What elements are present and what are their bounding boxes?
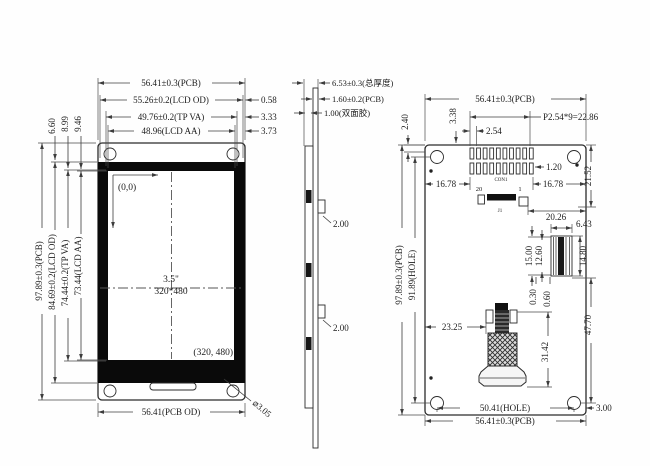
dim-top-gap-tp: 8.99 — [60, 116, 70, 132]
stem-flare — [479, 366, 526, 386]
j1-label: J1 — [498, 209, 503, 214]
pin-1-label: 1 — [518, 186, 521, 193]
dim-conn-gap1: 0.30 — [528, 289, 538, 305]
front-left-dimensions: 97.89±0.3(PCB) 84.69±0.2(LCD OD) 74.44±0… — [34, 116, 83, 400]
dim-conn-height: 14.80 — [578, 245, 588, 266]
stem-side-tab — [486, 310, 493, 323]
technical-drawing: (0,0) 3.5" 320*480 (320, 480) 56.41±0.3(… — [0, 0, 650, 466]
dim-tape-thickness: 1.00(双面胶) — [324, 108, 370, 118]
back-view: CON1 20 1 J1 — [394, 94, 612, 426]
dim-pin-pitch-total: P2.54*9=22.86 — [543, 112, 599, 122]
lcd-module-drawing: (0,0) 3.5" 320*480 (320, 480) 56.41±0.3(… — [0, 0, 650, 466]
dim-edge-gap-top: 3.38 — [448, 108, 458, 124]
fiducial-dot — [429, 169, 432, 172]
dim-lcd-aa-height: 73.44(LCD AA) — [73, 237, 83, 296]
corner-coordinate-label: (320, 480) — [193, 347, 233, 358]
side-tab-lower — [318, 305, 325, 318]
mounting-hole — [104, 385, 116, 397]
dim-edge-margin: 3.00 — [596, 403, 612, 413]
dim-pad-margin-right: 16.78 — [543, 179, 564, 189]
mounting-hole — [431, 397, 444, 410]
dim-offset-tp: 3.33 — [261, 112, 277, 122]
fpc-footprint-bar — [487, 194, 516, 201]
screen-size-label: 3.5" — [163, 275, 179, 285]
dim-pcb-od-width: 56.41(PCB OD) — [142, 407, 201, 417]
dim-tab-upper: 2.00 — [333, 219, 349, 229]
dim-hole-width: 50.41(HOLE) — [480, 403, 530, 413]
dim-conn-len1: 15.00 — [524, 245, 534, 266]
dim-offset-od: 0.58 — [261, 95, 277, 105]
pin-20-label: 20 — [476, 186, 483, 193]
screen-resolution-label: 320*480 — [154, 287, 188, 297]
dim-tab-lower: 2.00 — [333, 323, 349, 333]
dim-pad-width: 1.20 — [546, 162, 562, 172]
front-top-dimensions: 56.41±0.3(PCB) 55.26±0.2(LCD OD) 0.58 49… — [98, 78, 277, 136]
dim-tp-va-height: 74.44±0.2(TP VA) — [60, 240, 70, 307]
dim-fpc-offset: 20.26 — [546, 212, 567, 222]
dim-back-pcb-height: 97.89±0.3(PCB) — [394, 245, 404, 304]
fpc-slot — [150, 383, 196, 390]
dim-back-pcb-width: 56.41±0.3(PCB) — [475, 94, 534, 104]
fiducial-dot — [575, 163, 578, 166]
fpc-end-pad — [519, 197, 528, 206]
dim-lcd-od-width: 55.26±0.2(LCD OD) — [133, 95, 209, 105]
tape-block — [306, 337, 312, 350]
stem-cap — [495, 303, 508, 311]
origin-label: (0,0) — [118, 182, 136, 193]
dim-conn-len2: 12.60 — [534, 245, 544, 266]
stem-side-tab — [510, 310, 517, 323]
dim-tp-va-width: 49.76±0.2(TP VA) — [138, 112, 205, 122]
dim-offset-aa: 3.73 — [261, 126, 277, 136]
stem-body — [488, 333, 517, 366]
fiducial-dot — [429, 376, 432, 379]
lcd-active-area — [108, 171, 234, 360]
tape-block — [306, 190, 312, 203]
dim-top-gap-aa: 9.46 — [73, 116, 83, 132]
dim-edge-gap-left: 2.40 — [400, 114, 410, 130]
side-view: 6.53±0.3(总厚度) 1.60±0.2(PCB) 1.00(双面胶) 2.… — [292, 78, 393, 448]
dim-pcb-thickness: 1.60±0.2(PCB) — [332, 94, 384, 104]
dim-hole-diameter: ⌀3.05 — [251, 398, 274, 420]
fpc-end-pad — [478, 195, 485, 204]
dim-pad-margin-left: 16.78 — [436, 179, 457, 189]
dim-conn-width: 6.43 — [576, 219, 592, 229]
dim-lcd-aa-width: 48.96(LCD AA) — [142, 126, 201, 136]
dim-top-gap-od: 6.60 — [47, 118, 57, 134]
dim-pcb-width: 56.41±0.3(PCB) — [141, 78, 200, 88]
front-view: (0,0) 3.5" 320*480 (320, 480) 56.41±0.3(… — [34, 78, 277, 419]
mounting-hole — [431, 151, 444, 164]
dim-back-pcb-width-bottom: 56.41±0.3(PCB) — [475, 416, 534, 426]
dim-conn-gap2: 0.60 — [542, 291, 552, 307]
dim-right-span: 47.70 — [583, 314, 593, 335]
con1-label: CON1 — [494, 178, 508, 183]
stem-thread — [495, 310, 509, 333]
dim-total-thickness: 6.53±0.3(总厚度) — [332, 78, 393, 88]
side-tab-upper — [318, 200, 325, 213]
dim-con-height: 21.52 — [583, 166, 593, 186]
dim-lcd-od-height: 84.69±0.2(LCD OD) — [47, 234, 57, 310]
dim-stem-x: 23.25 — [442, 322, 463, 332]
mounting-hole — [568, 397, 581, 410]
mounting-hole — [568, 151, 581, 164]
dim-hole-height: 91.89(HOLE) — [407, 250, 417, 300]
dim-stem-height: 31.42 — [540, 342, 550, 362]
dim-pcb-height: 97.89±0.3(PCB) — [34, 241, 44, 300]
side-pcb-layer — [313, 88, 318, 448]
fpc-connector — [551, 236, 572, 276]
tape-block — [306, 263, 312, 277]
dim-pin-pitch: 2.54 — [486, 126, 502, 136]
